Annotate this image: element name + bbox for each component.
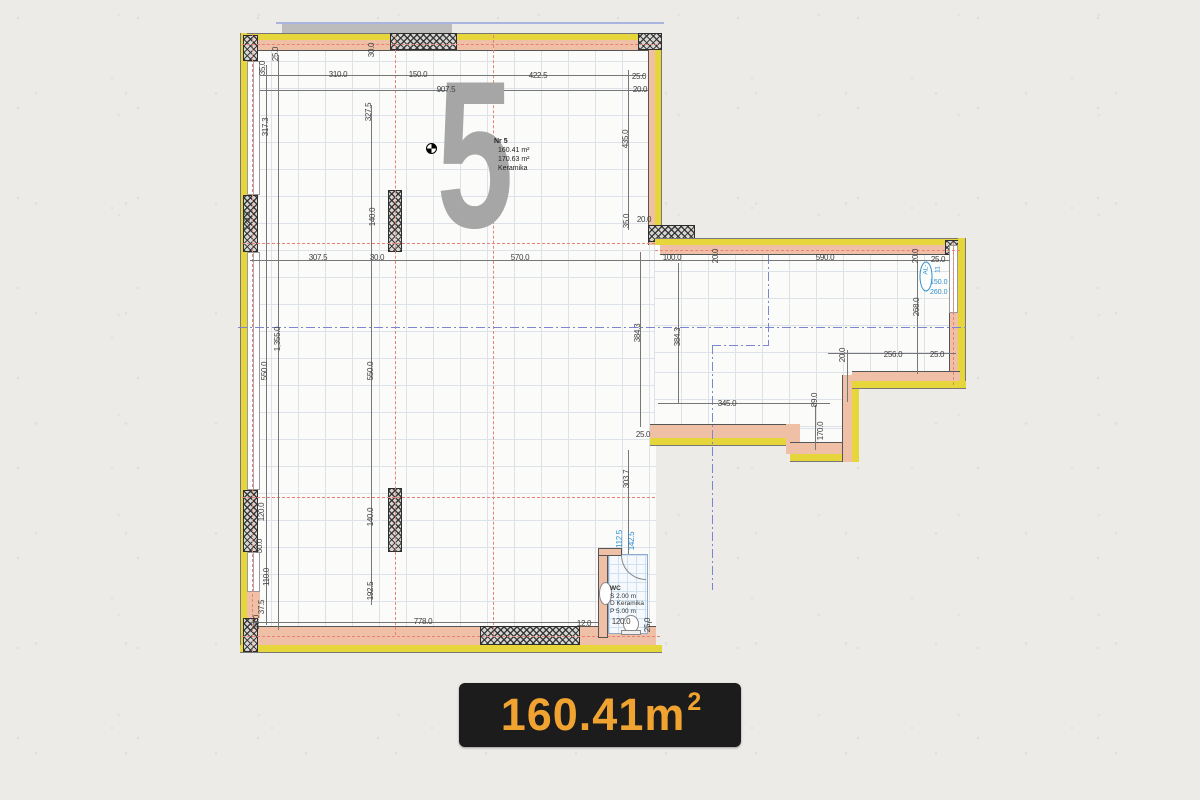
dimension-label: 590.0 [816,254,835,262]
dimension-label: 20.0 [712,249,720,263]
dimension-label: 25.0 [632,73,646,81]
dimension-label: 20.0 [633,86,647,94]
dimension-label: 12.0 [577,620,591,628]
dimension-label: 142.5 [628,532,636,551]
dimension-label: 20.0 [839,348,847,362]
dimension-label: 30.0 [370,254,384,262]
dimension-label: 550.0 [367,362,375,381]
dimension-label: 310.0 [329,71,348,79]
dimension-label: 25.0 [644,618,652,632]
area-badge: 160.41m 2 [459,683,741,747]
dimension-label: 25.0 [931,256,945,264]
dimension-label: 327.5 [365,103,373,122]
dimension-label: 140.0 [367,508,375,527]
wc-label-block: WC S 2.00 m D Keramika P 5.00 m [610,585,644,615]
dimension-label: 256.0 [884,351,903,359]
area-badge-value: 160.41m [501,689,686,741]
dimension-label: 20.0 [912,249,920,263]
dimension-label: 35.0 [259,61,267,75]
dimension-label: 778.0 [414,618,433,626]
wc-line-3: P 5.00 m [610,608,644,616]
dimension-label: 120.0 [612,618,631,626]
dimension-label: 150.0 [409,71,428,79]
dimension-labels-layer: 310.0150.0422.525.0907.520.035.025.030.0… [230,20,975,675]
dimension-label: 307.5 [309,254,328,262]
dimension-label: 345.0 [718,400,737,408]
dimension-label: 435.0 [622,130,630,149]
dimension-label: 25.0 [930,351,944,359]
dimension-label: 110.0 [263,568,271,586]
dimension-label: 1,355.0 [274,327,282,352]
dimension-label: 100.0 [663,254,682,262]
dimension-label: 317.3 [262,118,270,137]
dimension-label: 384.3 [674,328,682,347]
dimension-label: 120.3 [244,212,252,231]
dimension-label: 120.0 [258,503,266,522]
wc-line-2: D Keramika [610,600,644,608]
dimension-label: 30.0 [368,43,376,57]
page-background: { "badge": { "value": "160.41m", "sup": … [0,0,1200,800]
area-badge-superscript: 2 [687,688,701,717]
dimension-label: 20.0 [637,216,651,224]
dimension-label: 25.0 [272,47,280,61]
dimension-label: 89.0 [811,393,819,407]
floor-plan: WC S 2.00 m D Keramika P 5.00 m AL-11 15… [230,20,975,675]
dimension-label: 384.3 [634,324,642,343]
dimension-label: 907.5 [437,86,456,94]
dimension-label: 25.0 [253,615,261,629]
dimension-label: 170.0 [817,422,825,441]
dimension-label: 550.0 [261,362,269,381]
dimension-label: 140.0 [369,208,377,227]
dimension-label: 37.5 [258,600,266,614]
dimension-label: 268.0 [913,298,921,317]
dimension-label: 303.7 [623,470,631,489]
dimension-label: 35.0 [623,214,631,228]
dimension-label: 112.5 [616,530,624,548]
dimension-label: 192.5 [367,582,375,601]
wc-line-1: S 2.00 m [610,593,644,601]
dimension-label: 570.0 [511,254,530,262]
wc-title: WC [610,585,644,593]
dimension-label: 25.0 [636,431,650,439]
dimension-label: 422.5 [529,72,548,80]
dimension-label: 30.0 [256,539,264,553]
